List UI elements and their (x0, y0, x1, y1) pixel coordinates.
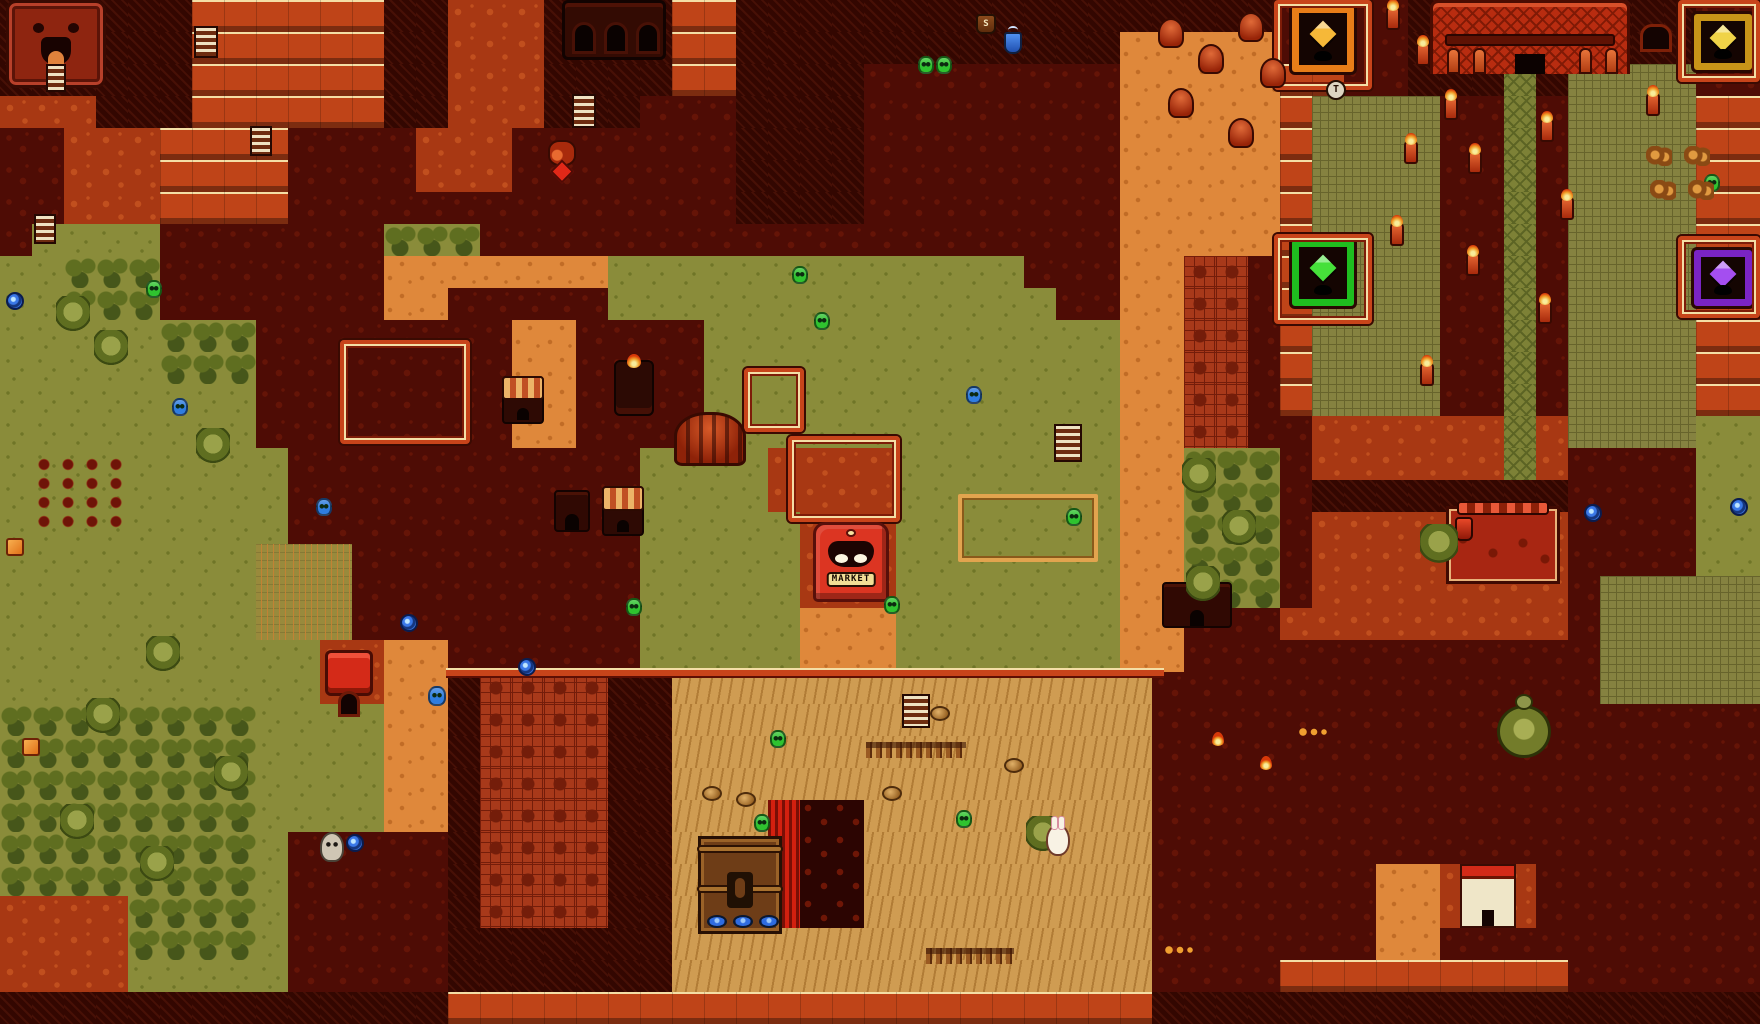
red-house[interactable] (325, 650, 373, 714)
subrosian-green-8[interactable] (956, 810, 972, 828)
brick-archway[interactable] (1640, 24, 1672, 52)
skeleton-sprite[interactable] (320, 832, 344, 862)
subrosian-green-1[interactable] (918, 56, 934, 74)
tree-9 (1182, 458, 1216, 496)
temple-column (1473, 48, 1486, 74)
furnace-scaffold[interactable] (698, 836, 782, 934)
market-roof-knob (846, 529, 856, 537)
boulder-2 (736, 792, 756, 807)
fountain-flame-icon (627, 354, 641, 368)
striped-mound (674, 412, 746, 466)
ruin-tower[interactable] (562, 0, 666, 60)
subrosian-green-2[interactable] (936, 56, 952, 74)
flame-fountain (614, 360, 654, 416)
stairs-6 (1054, 424, 1082, 462)
furnace-basin-icon (707, 915, 727, 928)
furnace-basin-icon (759, 915, 779, 928)
subrosian-green-7[interactable] (754, 814, 770, 832)
boulder-1 (702, 786, 722, 801)
torch-10 (1538, 300, 1552, 324)
furnace-basin-icon (733, 915, 753, 928)
stairs-4 (250, 126, 272, 156)
tree-2 (94, 330, 128, 368)
subrosian-blue-1[interactable] (428, 686, 446, 706)
stairs-3 (572, 94, 596, 128)
boulder-5 (930, 706, 950, 721)
garden-plot (958, 494, 1098, 562)
face-eyes-icon (33, 23, 79, 33)
lodge-front[interactable] (1460, 864, 1516, 928)
wall-ring-market (788, 436, 900, 522)
torch-12 (1560, 196, 1574, 220)
tree-12 (1420, 524, 1458, 566)
warp-swirl-4[interactable] (400, 614, 418, 632)
market-building[interactable]: MARKET (813, 522, 889, 602)
bush-1 (1646, 146, 1672, 166)
stairs-1 (46, 64, 66, 92)
market-entrance[interactable] (828, 541, 874, 567)
furnace-mouth (727, 872, 753, 908)
compound-wall-top (446, 668, 1164, 678)
tree-7 (60, 804, 94, 842)
stairs-7 (34, 214, 56, 244)
bunny-sprite[interactable] (1046, 824, 1070, 856)
awning-hut-west[interactable] (502, 376, 544, 424)
market-sign: MARKET (827, 572, 876, 587)
bush-4 (1688, 180, 1714, 200)
item-dots-2 (1298, 726, 1332, 738)
torch-7 (1646, 92, 1660, 116)
wall-ring-pad-orange (1274, 0, 1372, 90)
tree-3 (196, 428, 230, 466)
subrosian-green-4[interactable] (792, 266, 808, 284)
subrosian-green-10[interactable] (626, 598, 642, 616)
wall-ring-pad-purple (1678, 236, 1760, 318)
torch-8 (1390, 222, 1404, 246)
machine-pipes-icon (1457, 501, 1549, 515)
cone-rock-4 (1168, 88, 1194, 118)
torch-1 (1386, 6, 1400, 30)
torch-9 (1466, 252, 1480, 276)
flame-small-2 (1260, 756, 1272, 770)
warp-swirl-5[interactable] (1584, 504, 1602, 522)
boulder-3 (882, 786, 902, 801)
fence-south (926, 948, 1014, 964)
temple[interactable] (1430, 0, 1630, 74)
torch-3 (1444, 96, 1458, 120)
wall-ring-west (340, 340, 470, 444)
stairs-5 (902, 694, 930, 728)
warp-swirl-6[interactable] (1730, 498, 1748, 516)
subrosian-blue-2[interactable] (966, 386, 982, 404)
game-map[interactable]: MARKETTS (0, 0, 1760, 1024)
warp-swirl-2[interactable] (346, 834, 364, 852)
bush-2 (1684, 146, 1710, 166)
tree-11 (1186, 566, 1220, 604)
supply-pot: S (976, 14, 996, 34)
subrosian-green-9[interactable] (1066, 508, 1082, 526)
subrosian-green-11[interactable] (884, 596, 900, 614)
warp-swirl-1[interactable] (6, 292, 24, 310)
house-door[interactable] (341, 694, 357, 714)
tree-4 (146, 636, 180, 674)
item-box-2[interactable] (6, 538, 24, 556)
face-mouth-entrance[interactable] (41, 37, 71, 65)
tree-8 (140, 846, 174, 884)
warp-swirl-3[interactable] (518, 658, 536, 676)
steaming-jar (1004, 32, 1022, 54)
cone-rock-3 (1238, 12, 1264, 42)
wall-ring-center (744, 368, 804, 432)
wall-ring-pad-yellow (1678, 0, 1760, 82)
subrosian-green-6[interactable] (770, 730, 786, 748)
temple-column (1605, 48, 1618, 74)
tree-6 (214, 756, 248, 794)
boulder-4 (1004, 758, 1024, 773)
item-dots-1 (1164, 944, 1198, 956)
shrine-hut[interactable] (554, 490, 590, 532)
temple-column (1447, 48, 1460, 74)
torch-4 (1404, 140, 1418, 164)
tortoise-statue (1492, 694, 1556, 762)
tower-alcove (575, 25, 593, 51)
torch-2 (1416, 42, 1430, 66)
crop-rows (28, 452, 132, 530)
cone-rock-1 (1158, 18, 1184, 48)
flame-small-1 (1212, 732, 1224, 746)
pipe-works[interactable] (1446, 506, 1560, 584)
temple-doorway[interactable] (1515, 54, 1545, 74)
statue-head-icon (1515, 694, 1533, 710)
ore-pile[interactable] (548, 140, 576, 180)
fence-north (866, 742, 966, 758)
furnace-beam (697, 845, 783, 853)
awning-hut-east[interactable] (602, 486, 644, 536)
tree-1 (56, 296, 90, 334)
cone-rock-2 (1198, 44, 1224, 74)
subrosian-green-12[interactable] (146, 280, 162, 298)
subrosian-blue-3[interactable] (316, 498, 332, 516)
house-roof (325, 650, 373, 696)
wall-ring-pad-green (1274, 234, 1372, 324)
subrosian-blue-4[interactable] (172, 398, 188, 416)
landmarks: MARKETTS (0, 0, 1760, 1024)
torch-6 (1540, 118, 1554, 142)
cone-rock-6 (1260, 58, 1286, 88)
tower-alcove (607, 25, 625, 51)
stairs-2 (194, 26, 218, 58)
torch-11 (1420, 362, 1434, 386)
temple-lintel (1445, 34, 1616, 46)
tree-10 (1222, 510, 1256, 548)
temple-column (1579, 48, 1592, 74)
tree-5 (86, 698, 120, 736)
torch-5 (1468, 150, 1482, 174)
item-box-1[interactable] (22, 738, 40, 756)
bush-3 (1650, 180, 1676, 200)
sign-post: T (1326, 80, 1346, 100)
subrosian-green-5[interactable] (814, 312, 830, 330)
tower-alcove (639, 25, 657, 51)
cone-rock-5 (1228, 118, 1254, 148)
